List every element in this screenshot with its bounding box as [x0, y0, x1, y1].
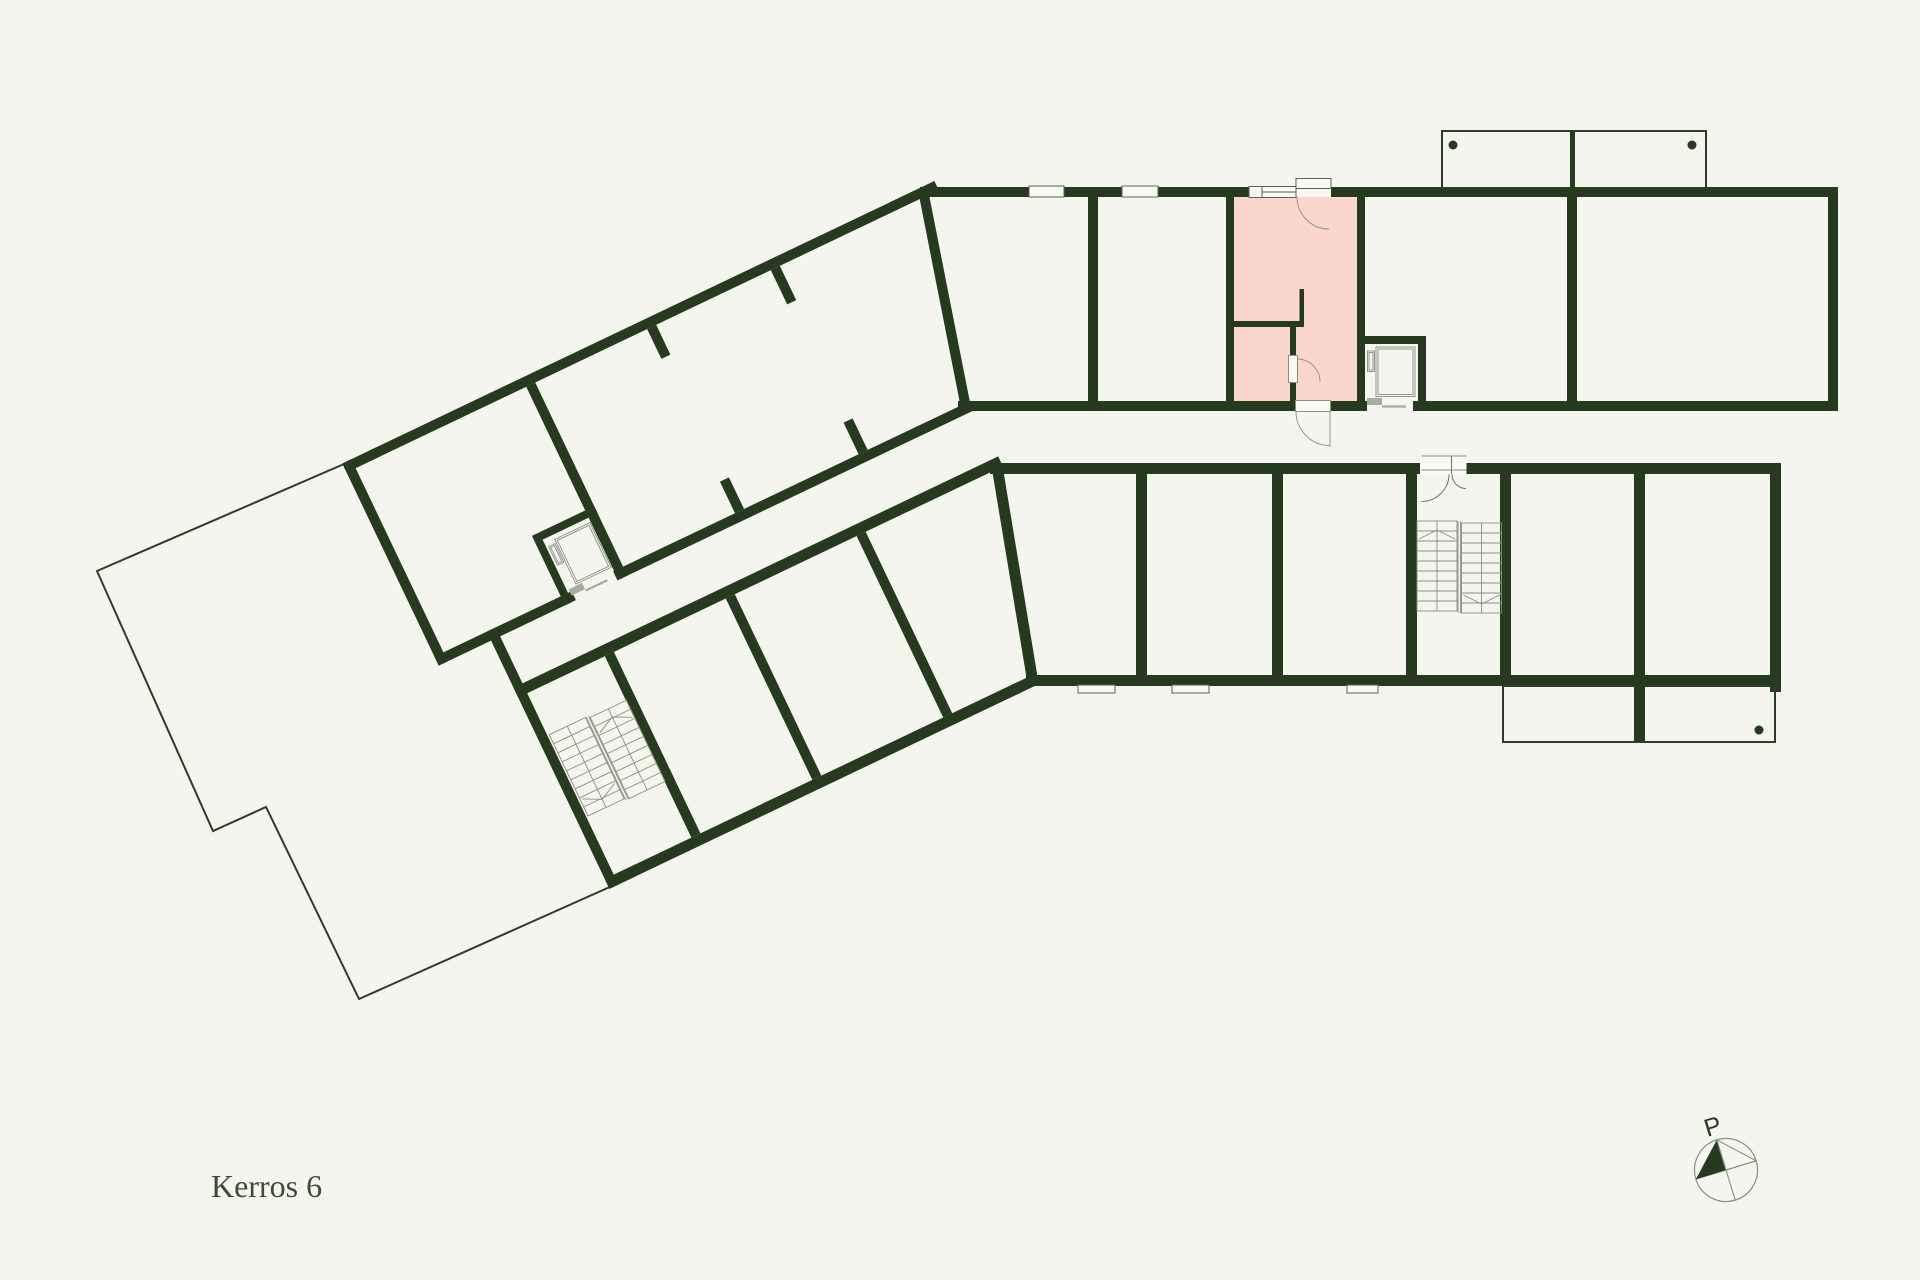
- svg-text:Kerros 6: Kerros 6: [211, 1168, 322, 1204]
